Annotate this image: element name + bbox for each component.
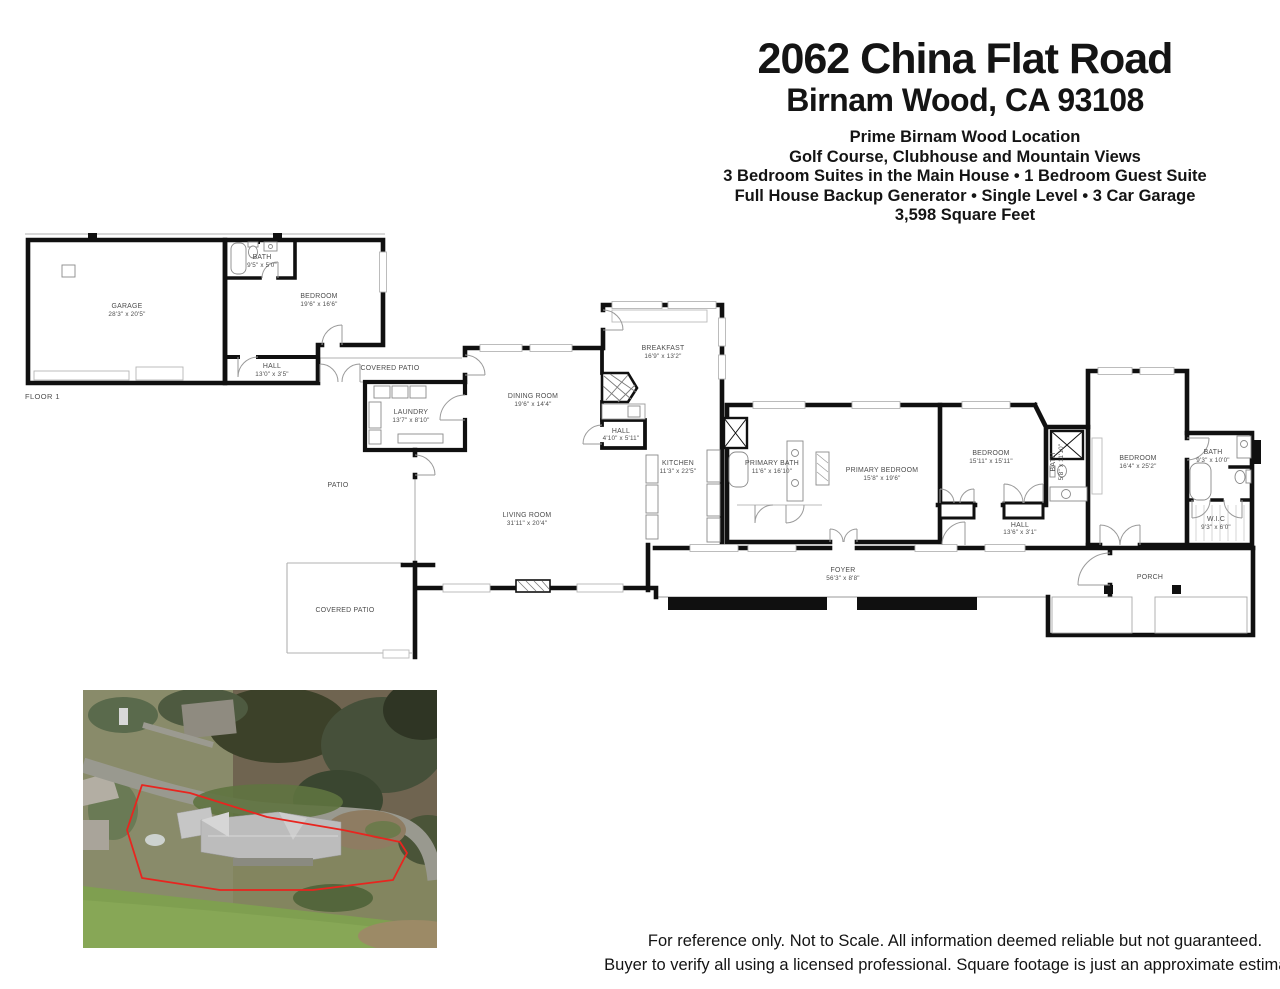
room-primary-bath: PRIMARY BATH 11'6" x 16'10" xyxy=(745,460,799,475)
room-garage: GARAGE 28'3" x 20'5" xyxy=(108,303,145,318)
svg-text:4'10" x 5'11": 4'10" x 5'11" xyxy=(603,435,640,442)
room-wic: W.I.C 9'3" x 6'0" xyxy=(1201,516,1231,531)
fireplace-icon xyxy=(602,373,637,402)
svg-text:19'6" x 14'4": 19'6" x 14'4" xyxy=(514,401,551,408)
svg-text:BREAKFAST: BREAKFAST xyxy=(642,345,685,352)
solid-wall-slabs xyxy=(88,233,1261,610)
disclaimer-line2: Buyer to verify all using a licensed pro… xyxy=(580,953,1280,977)
room-guest-bath: BATH 9'5" x 5'0" xyxy=(247,254,277,269)
svg-text:13'0" x 3'5": 13'0" x 3'5" xyxy=(255,371,288,378)
svg-text:W.I.C: W.I.C xyxy=(1207,516,1225,523)
svg-text:BATH: BATH xyxy=(253,254,272,261)
svg-text:15'8" x 19'6": 15'8" x 19'6" xyxy=(863,475,900,482)
room-laundry: LAUNDRY 13'7" x 8'10" xyxy=(392,409,429,424)
room-covered-patio-lower: COVERED PATIO xyxy=(316,607,375,614)
svg-text:15'11" x 15'11": 15'11" x 15'11" xyxy=(969,458,1013,465)
svg-text:13'7" x 8'10": 13'7" x 8'10" xyxy=(392,417,429,424)
room-primary-bedroom: PRIMARY BEDROOM 15'8" x 19'6" xyxy=(846,467,918,482)
svg-text:16'4" x 25'2": 16'4" x 25'2" xyxy=(1119,463,1156,470)
room-bedroom-4: BEDROOM 16'4" x 25'2" xyxy=(1119,455,1156,470)
svg-text:BATH: BATH xyxy=(1050,453,1057,472)
svg-text:13'6" x 3'1": 13'6" x 3'1" xyxy=(1003,529,1036,536)
svg-text:LIVING ROOM: LIVING ROOM xyxy=(503,512,552,519)
svg-text:11'3" x 22'5": 11'3" x 22'5" xyxy=(660,468,697,475)
room-living: LIVING ROOM 31'11" x 20'4" xyxy=(503,512,552,527)
svg-text:HALL: HALL xyxy=(1011,522,1029,529)
svg-text:DINING ROOM: DINING ROOM xyxy=(508,393,558,400)
room-covered-patio-upper: COVERED PATIO xyxy=(361,365,420,372)
svg-text:BATH: BATH xyxy=(1204,449,1223,456)
room-porch: PORCH xyxy=(1137,574,1163,581)
room-bath-4: BATH 9'3" x 10'0" xyxy=(1196,449,1229,464)
closet-boxes xyxy=(940,503,1043,518)
svg-text:56'3" x 8'8": 56'3" x 8'8" xyxy=(826,575,859,582)
shaft-icon xyxy=(724,418,747,448)
svg-text:BEDROOM: BEDROOM xyxy=(300,293,337,300)
svg-text:5'8" x 11'10": 5'8" x 11'10" xyxy=(1058,444,1065,481)
svg-text:9'3" x 6'0": 9'3" x 6'0" xyxy=(1201,524,1231,531)
room-guest-bedroom: BEDROOM 19'6" x 16'6" xyxy=(300,293,337,308)
svg-text:PRIMARY BEDROOM: PRIMARY BEDROOM xyxy=(846,467,918,474)
room-dining: DINING ROOM 19'6" x 14'4" xyxy=(508,393,558,408)
svg-text:KITCHEN: KITCHEN xyxy=(662,460,694,467)
room-kitchen: KITCHEN 11'3" x 22'5" xyxy=(660,460,697,475)
svg-text:PRIMARY BATH: PRIMARY BATH xyxy=(745,460,799,467)
flyer-page: 2062 China Flat Road Birnam Wood, CA 931… xyxy=(0,0,1280,989)
room-hall-kitchen: HALL 4'10" x 5'11" xyxy=(603,428,640,442)
svg-text:11'6" x 16'10": 11'6" x 16'10" xyxy=(752,468,792,475)
svg-text:HALL: HALL xyxy=(612,428,630,435)
svg-text:GARAGE: GARAGE xyxy=(112,303,143,310)
disclaimer-line3: . xyxy=(580,977,1280,989)
disclaimer: For reference only. Not to Scale. All in… xyxy=(580,929,1280,989)
svg-text:9'5" x 5'0": 9'5" x 5'0" xyxy=(247,262,277,269)
room-bedroom-3: BEDROOM 15'11" x 15'11" xyxy=(969,450,1013,465)
svg-text:16'9" x 13'2": 16'9" x 13'2" xyxy=(644,353,681,360)
svg-text:LAUNDRY: LAUNDRY xyxy=(394,409,429,416)
svg-text:BEDROOM: BEDROOM xyxy=(972,450,1009,457)
svg-text:FOYER: FOYER xyxy=(831,567,856,574)
room-patio: PATIO xyxy=(328,482,349,489)
aerial-photo-illustration xyxy=(83,690,437,948)
room-guest-hall: HALL 13'0" x 3'5" xyxy=(255,363,288,378)
svg-text:19'6" x 16'6": 19'6" x 16'6" xyxy=(300,301,337,308)
svg-text:HALL: HALL xyxy=(263,363,281,370)
svg-text:28'3" x 20'5": 28'3" x 20'5" xyxy=(108,311,145,318)
aerial-photo xyxy=(83,690,437,948)
room-foyer: FOYER 56'3" x 8'8" xyxy=(826,567,859,582)
svg-text:31'11" x 20'4": 31'11" x 20'4" xyxy=(507,520,547,527)
svg-text:9'3" x 10'0": 9'3" x 10'0" xyxy=(1196,457,1229,464)
room-breakfast: BREAKFAST 16'9" x 13'2" xyxy=(642,345,685,360)
disclaimer-line1: For reference only. Not to Scale. All in… xyxy=(580,929,1280,953)
hearth-icon xyxy=(516,580,550,592)
room-hall-3: HALL 13'6" x 3'1" xyxy=(1003,522,1036,536)
floor-label: FLOOR 1 xyxy=(25,392,60,401)
svg-text:BEDROOM: BEDROOM xyxy=(1119,455,1156,462)
